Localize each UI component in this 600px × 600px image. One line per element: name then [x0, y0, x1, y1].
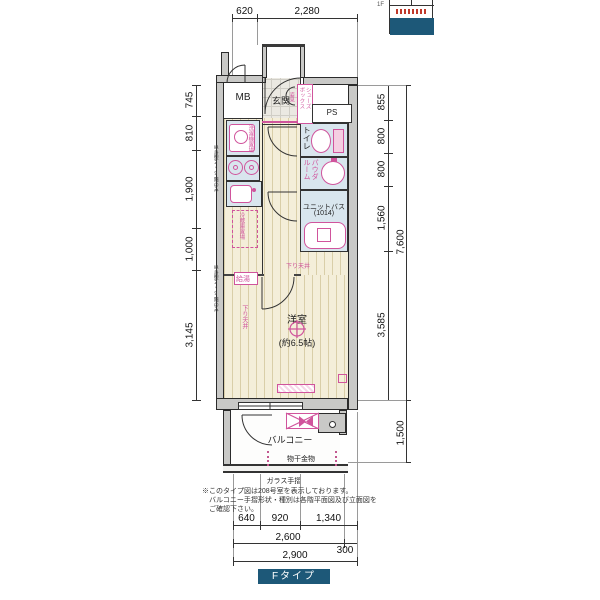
wall-right — [348, 85, 358, 410]
genkan-step-line — [262, 124, 300, 125]
balcony-wall-left — [223, 410, 231, 472]
toilet-tank-icon — [333, 129, 344, 153]
main-room-size-label: (約6.5帖) — [269, 336, 325, 349]
balcony-label: バルコニー — [263, 433, 317, 446]
dim-bottom-2900: 2,900 — [245, 550, 345, 561]
balcony-window — [238, 402, 303, 410]
stove-burner-dot — [249, 165, 254, 170]
outlet-box — [338, 374, 347, 383]
partition-corridor-left — [262, 78, 263, 275]
wall-left — [216, 75, 224, 410]
fridge-label: 冷蔵庫置場 — [238, 212, 244, 240]
floor-stack-inset — [389, 0, 433, 34]
fridge-space — [232, 210, 258, 248]
dim-line-top — [232, 18, 358, 19]
porch-wall-left — [262, 45, 267, 78]
genkan-label: 玄関 — [262, 94, 300, 107]
dim-tick — [357, 557, 358, 566]
partition-room-stub — [294, 274, 301, 276]
dim-right-7600: 7,600 — [396, 229, 407, 254]
dim-tick — [233, 557, 234, 566]
ext-line — [357, 22, 358, 77]
dim-line-right-outer — [406, 85, 407, 462]
laundry-hardware-label: 物干金物 — [282, 454, 320, 464]
dim-left-1000: 1,000 — [185, 236, 196, 261]
down-ceiling-label-v: 下り天井 — [240, 305, 247, 329]
partition-mb-bottom — [224, 118, 262, 119]
basin-icon — [321, 161, 345, 185]
balcony-drain — [329, 421, 336, 428]
inset-room-mark — [396, 9, 428, 14]
ext-line — [232, 22, 233, 75]
dim-line-bottom-2 — [233, 543, 357, 544]
ext-line — [358, 400, 406, 401]
dim-line-left — [196, 85, 197, 400]
ext-line — [344, 474, 345, 544]
porch-wall-right — [300, 45, 305, 78]
note-line-3: ご確認下さい。 — [209, 504, 258, 514]
balcony-hatch-box — [286, 413, 319, 429]
wall-stub-top-left — [221, 52, 229, 76]
floor-note-lower: 単身型2〜9階のみ — [212, 265, 218, 312]
bathtub-inner-icon — [317, 228, 331, 242]
inset-floor-label: 1F — [377, 2, 384, 8]
floor-plan-page: 1F 洗濯機置場 冷蔵庫置場 給湯 シューズ ボッ — [0, 0, 600, 600]
unit-bath-label-2: (1014) — [302, 210, 346, 217]
ps-label: PS — [312, 108, 352, 117]
dim-left-3145: 3,145 — [185, 322, 196, 347]
toilet-bowl-icon — [311, 129, 331, 153]
basin-faucet-icon — [331, 158, 337, 162]
ext-line — [358, 85, 406, 86]
down-ceiling-label-h: 下り天井 — [286, 261, 310, 270]
dim-tick — [384, 153, 393, 154]
dim-tick — [357, 521, 358, 530]
entry-door-line — [262, 44, 305, 47]
powder-room-label: パウダ ルーム — [302, 159, 318, 180]
dim-tick — [192, 270, 201, 271]
dim-tick — [192, 228, 201, 229]
dim-bottom-1340: 1,340 — [300, 513, 357, 524]
dim-tick — [192, 85, 201, 86]
kitchen-faucet-icon — [252, 188, 256, 192]
dim-right-1500: 1,500 — [396, 420, 407, 445]
kitchen-sink-icon — [230, 185, 252, 203]
dim-bottom-640: 640 — [233, 513, 260, 524]
dim-bottom-920: 920 — [260, 513, 300, 524]
dim-line-right-inner — [388, 85, 389, 400]
dim-left-810: 810 — [185, 125, 196, 142]
dim-right-1560: 1,560 — [377, 205, 388, 230]
wall-top-left — [216, 75, 266, 83]
dim-tick — [384, 186, 393, 187]
glass-rail-label: ガラス手摺 — [264, 476, 304, 486]
type-badge: Fタイプ — [258, 569, 330, 584]
floor-note-upper: 単身型2〜9階のみ — [212, 145, 218, 192]
dim-bottom-2600: 2,600 — [238, 532, 338, 543]
glass-railing — [223, 464, 348, 473]
genkan-step-edge — [262, 121, 300, 123]
toilet-label: トイレ — [302, 126, 311, 150]
main-room-label: 洋室 — [277, 311, 317, 326]
inset-grid-line — [390, 5, 434, 6]
dim-line-bottom-3 — [233, 561, 357, 562]
dim-left-745: 745 — [185, 92, 196, 109]
dim-top-2280: 2,280 — [257, 6, 357, 17]
laundry-pole-icon — [335, 451, 337, 466]
dim-line-bottom-1 — [233, 525, 357, 526]
laundry-pole-icon — [267, 451, 269, 466]
ext-line — [257, 22, 258, 45]
washing-machine-drum-icon — [234, 130, 248, 144]
ext-line — [357, 412, 358, 562]
inset-grid-vline — [411, 0, 412, 5]
dim-right-855: 855 — [377, 94, 388, 111]
inset-highlight-cell — [390, 18, 434, 35]
ac-unit-box — [277, 384, 315, 393]
dim-right-800b: 800 — [377, 161, 388, 178]
dim-tick — [192, 116, 201, 117]
mb-label: MB — [224, 92, 262, 103]
stove-burner-dot — [233, 165, 238, 170]
water-heater-label: 給湯 — [236, 274, 250, 284]
dim-tick — [384, 120, 393, 121]
dim-tick — [192, 150, 201, 151]
dim-right-3585: 3,585 — [377, 312, 388, 337]
dim-right-800a: 800 — [377, 128, 388, 145]
dim-left-1900: 1,900 — [185, 176, 196, 201]
dim-top-620: 620 — [232, 6, 257, 17]
dim-tick — [192, 400, 201, 401]
washer-label: 洗濯機置場 — [247, 125, 253, 153]
dim-tick — [233, 539, 234, 548]
dim-tick — [384, 251, 393, 252]
